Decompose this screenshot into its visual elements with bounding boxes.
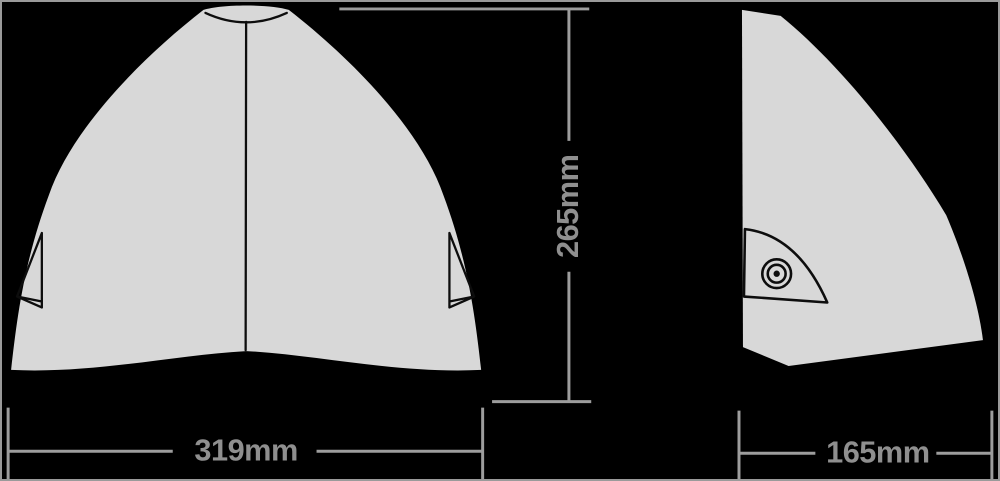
width-dimension: 319mm [8,408,483,479]
side-bolt-center-dot-icon [774,271,780,277]
height-dim-label: 265mm [550,155,585,258]
depth-dim-label: 165mm [826,435,929,470]
side-view [742,10,983,366]
front-view [11,5,481,370]
diagram-svg: 265mm 319mm 165mm [2,2,998,479]
width-dim-label: 319mm [194,433,297,468]
side-view-body [742,10,983,366]
dimension-diagram: 265mm 319mm 165mm [0,0,1000,481]
depth-dimension: 165mm [739,411,992,479]
